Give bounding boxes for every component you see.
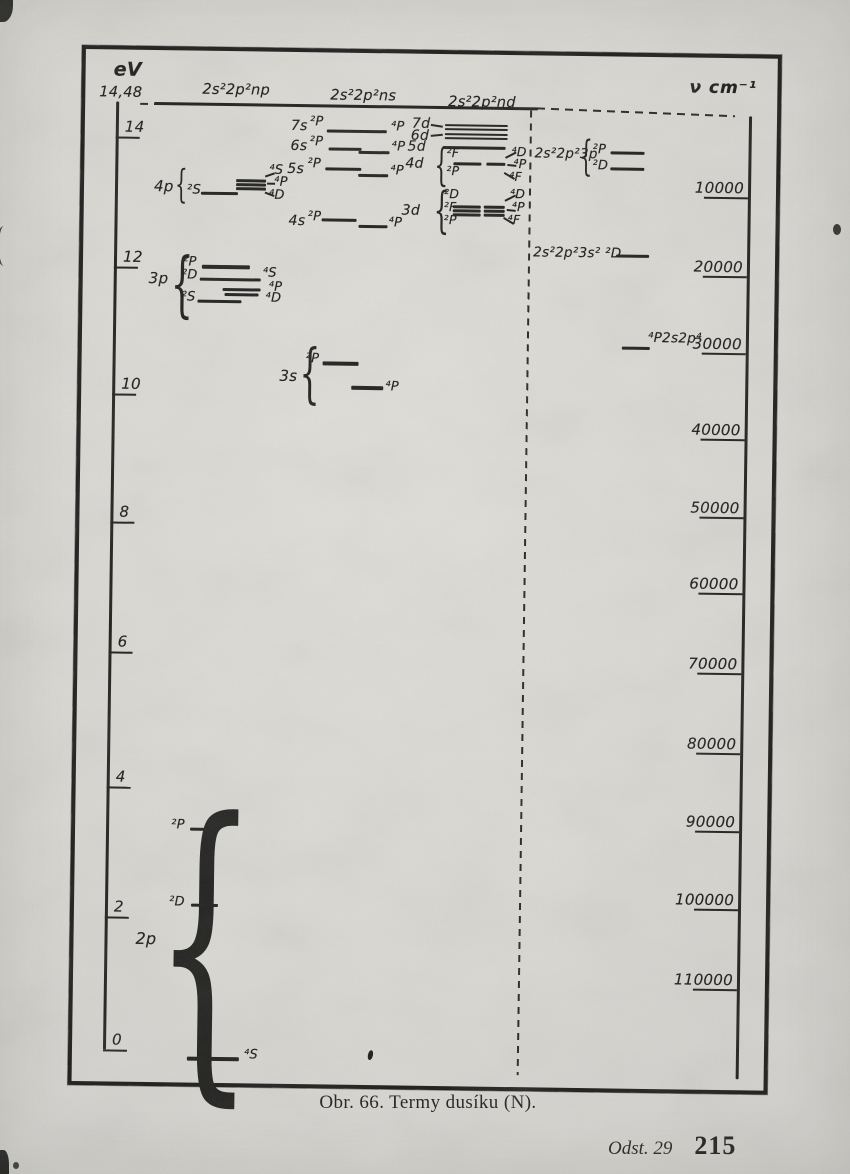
term-label: ⁴P (391, 140, 405, 155)
energy-level-line (622, 347, 650, 350)
right-axis-tick-label: 100000 (634, 891, 734, 910)
scanned-book-page: eV 14,48 ν cm⁻¹ 141210864201000020000300… (0, 0, 850, 1174)
left-axis-tick-label: 2 (114, 899, 124, 916)
term-label: ⁴F (507, 213, 520, 228)
term-label: ²F (446, 146, 459, 161)
energy-level-line (327, 129, 387, 133)
figure-caption: Obr. 66. Termy dusíku (N). (128, 1092, 728, 1114)
energy-level-line (187, 1057, 239, 1061)
term-label: ²S (181, 290, 195, 305)
scan-artifact-dot (13, 1162, 19, 1169)
energy-level-line (325, 167, 361, 170)
energy-level-line (484, 214, 505, 217)
pointer-stroke (431, 124, 443, 128)
term-label: ⁴P (391, 120, 405, 135)
energy-level-line (322, 218, 357, 221)
term-label: ²P (307, 157, 321, 172)
energy-level-line (202, 265, 250, 269)
left-axis-unit: eV (113, 59, 142, 81)
scan-artifact-corner (0, 1150, 9, 1174)
left-axis-tick (114, 266, 138, 269)
term-label: 4d (405, 156, 424, 172)
energy-level-line (445, 133, 508, 136)
column-header: 2s²2p²ns (330, 87, 396, 105)
left-axis-tick-label: 14 (125, 119, 145, 137)
energy-level-line (236, 187, 266, 190)
term-label: 7s (291, 118, 308, 134)
term-label: ²D (182, 268, 198, 283)
left-axis-tick (103, 1049, 127, 1052)
energy-level-line (200, 278, 261, 282)
term-label: ²P (306, 352, 320, 367)
term-label: ⁴D (265, 292, 281, 307)
energy-level-line (445, 128, 508, 131)
energy-level-line (610, 167, 644, 170)
limit-dash-left (140, 103, 155, 105)
energy-level-line (616, 254, 649, 257)
energy-level-line (453, 205, 481, 208)
scan-artifact-corner (0, 0, 13, 22)
limit-dash-right (537, 107, 735, 117)
left-axis-tick (107, 786, 131, 789)
left-axis-tick (116, 136, 140, 139)
right-axis-tick-label: 110000 (633, 971, 733, 990)
term-label: ⁴D (269, 189, 285, 204)
energy-level-line (329, 147, 362, 150)
right-axis-tick-label: 90000 (635, 813, 735, 832)
left-axis-tick-label: 8 (119, 504, 129, 521)
term-label: ²D (592, 159, 608, 174)
footer-page-number: 215 (694, 1131, 736, 1160)
energy-level-line (225, 293, 259, 296)
term-label: ²P (171, 818, 185, 833)
right-axis-tick-label: 50000 (639, 499, 739, 518)
diagram-canvas: eV 14,48 ν cm⁻¹ 141210864201000020000300… (72, 49, 778, 1091)
term-label: ²P (592, 143, 606, 158)
energy-level-line (201, 192, 238, 196)
left-axis-tick (109, 651, 133, 654)
left-axis-tick (105, 916, 129, 919)
left-axis-tick-label: 6 (118, 634, 128, 651)
left-axis-tick-label: 0 (112, 1032, 122, 1049)
energy-level-line (484, 210, 505, 213)
energy-level-line (358, 225, 387, 228)
footer-section-ref: Odst. 29 (608, 1138, 672, 1159)
term-label: ²P (310, 115, 324, 130)
energy-level-line (197, 300, 241, 304)
term-label: 6s (290, 138, 307, 154)
energy-level-line (236, 183, 266, 186)
energy-level-line (351, 386, 383, 390)
right-axis-tick-label: 60000 (638, 575, 738, 594)
scan-artifact-mark (0, 226, 12, 266)
left-axis-tick-label: 12 (123, 249, 143, 267)
ink-blob (367, 1050, 374, 1061)
figure-frame: eV 14,48 ν cm⁻¹ 141210864201000020000300… (67, 45, 781, 1095)
energy-level-line (323, 361, 359, 365)
energy-level-line (453, 209, 481, 212)
energy-level-line (486, 163, 505, 166)
term-label: ²P (446, 164, 459, 179)
energy-level-line (358, 174, 388, 177)
term-label: ⁴F (509, 170, 522, 185)
right-axis-tick-label: 40000 (641, 421, 741, 440)
term-label: ²D (169, 895, 185, 910)
right-axis-tick-label: 10000 (644, 179, 744, 198)
left-axis-tick (110, 521, 134, 524)
term-label: 5s (287, 161, 304, 177)
term-label: 5d (408, 139, 427, 155)
energy-level-line (191, 904, 218, 907)
right-axis-unit: ν cm⁻¹ (689, 78, 757, 98)
term-label: 4s (288, 213, 305, 229)
term-label: ⁴P (390, 164, 404, 179)
term-label: ⁴S (244, 1048, 258, 1063)
left-axis-tick (112, 393, 136, 396)
column-divider-dashed (517, 110, 532, 1075)
scan-artifact-dot (833, 224, 841, 235)
term-label: ⁴P (388, 216, 402, 231)
energy-level-line (359, 151, 390, 154)
term-label: 3d (402, 202, 421, 218)
column-header: 2s²2p²np (202, 82, 270, 100)
group-label-3p: 3p (149, 270, 169, 288)
page-footer: Odst. 29215 (608, 1131, 736, 1161)
group-label-2p: 2p (135, 930, 156, 949)
config-label-3s: 2s²2p²3s² ²D (533, 245, 622, 262)
right-axis-tick-label: 70000 (637, 655, 737, 674)
energy-level-line (453, 162, 481, 165)
term-label: ²P (308, 210, 322, 225)
brace: { (579, 140, 593, 172)
pointer-stroke (431, 134, 443, 137)
energy-level-line (484, 206, 505, 209)
term-label: ²S (187, 183, 201, 198)
group-label-3s: 3s (279, 368, 297, 385)
right-axis-tick-label: 20000 (643, 258, 743, 277)
group-label-4p: 4p (154, 178, 174, 196)
term-label: ⁴P (385, 380, 399, 395)
config-label-2s2p4: ⁴P2s2p⁴ (648, 331, 702, 347)
energy-level-line (190, 828, 218, 831)
energy-level-line (453, 213, 481, 216)
brace: { (175, 170, 188, 200)
term-label: ²P (310, 135, 324, 150)
left-axis-tick-label: 4 (116, 769, 126, 786)
energy-level-line (236, 179, 266, 182)
energy-level-line (445, 124, 508, 127)
ionization-limit-value: 14,48 (99, 84, 142, 101)
energy-level-line (611, 151, 645, 154)
brace: { (152, 818, 259, 1069)
energy-level-line (223, 288, 261, 292)
right-axis-tick-label: 80000 (636, 735, 736, 754)
left-axis-tick-label: 10 (121, 376, 141, 394)
energy-level-line (445, 137, 508, 140)
